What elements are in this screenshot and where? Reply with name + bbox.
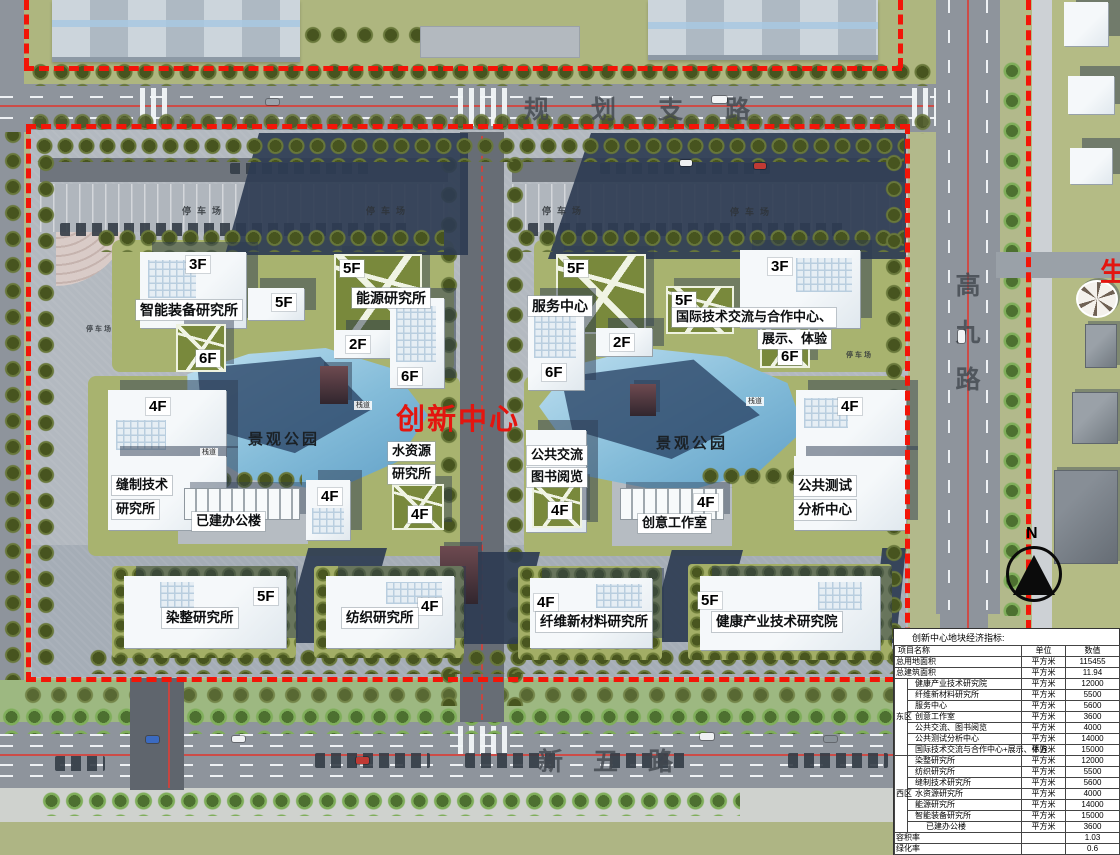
table-row: 纤维新材料研究所平方米5500 [895,690,1120,701]
table-value-cell: 5600 [1066,778,1120,789]
table-name-cell: 创意工作室 [908,712,1022,723]
table-group-cell: 西区 [895,756,908,833]
table-unit-cell: 平方米 [1022,800,1066,811]
table-name-cell: 智能装备研究所 [908,811,1022,822]
indicator-table-title: 创新中心地块经济指标: [894,629,1119,645]
house-medium [1072,392,1118,444]
table-name-cell: 已建办公楼 [908,822,1022,833]
north-parcel-dashed-line [24,66,902,71]
table-unit-cell: 平方米 [1022,679,1066,690]
table-name-cell: 染整研究所 [908,756,1022,767]
table-value-cell: 14000 [1066,800,1120,811]
table-name-cell: 健康产业技术研究院 [908,679,1022,690]
table-name-cell: 总用地面积 [895,657,1022,668]
apartment-block-3 [1070,148,1112,184]
table-unit-cell: 平方米 [1022,811,1066,822]
tree-column-west-edge [2,96,24,716]
road-right-lane-2 [986,0,988,610]
table-row: 西区染整研究所平方米12000 [895,756,1120,767]
table-row: 总建筑面积平方米11.94 [895,668,1120,679]
factory-roof-east-skylight [648,22,878,29]
site-plan-canvas: 3F 5F 6F 5F 2F 6F 4F 4F 4F 5F 4F 5F 6F 2… [0,0,1120,855]
table-name-cell: 总建筑面积 [895,668,1022,679]
table-value-cell: 1.03 [1066,833,1120,844]
car [680,160,692,166]
factory-roof-east [648,0,878,60]
table-value-cell: 115455 [1066,657,1120,668]
table-name-cell: 纤维新材料研究所 [908,690,1022,701]
table-row: 绿化率0.6 [895,844,1120,855]
table-unit-cell: 平方米 [1022,657,1066,668]
table-row: 智能装备研究所平方米15000 [895,811,1120,822]
table-header-row: 项目名称 单位 数值 [895,646,1120,657]
table-unit-cell: 平方米 [1022,778,1066,789]
table-value-cell: 5600 [1066,701,1120,712]
car [232,736,245,742]
parked-cars-row-1 [315,753,430,768]
car [700,733,714,740]
table-value-cell: 14000 [1066,734,1120,745]
table-value-cell: 4000 [1066,723,1120,734]
table-row: 已建办公楼平方米3600 [895,822,1120,833]
tree-column-right-of-road [1000,56,1024,616]
car [356,757,369,764]
road-name-bottom: 新五路 [538,742,703,778]
table-value-cell: 15000 [1066,811,1120,822]
table-row: 缝制技术研究所平方米5600 [895,778,1120,789]
table-unit-cell: 平方米 [1022,789,1066,800]
car [754,163,766,169]
road-name-top: 规划支路 [524,90,792,126]
parcel-dashed-corner-west [24,0,29,68]
table-unit-cell: 平方米 [1022,690,1066,701]
indicator-table-panel: 创新中心地块经济指标: 项目名称 单位 数值总用地面积平方米115455总建筑面… [893,628,1120,855]
apartment-block-2 [1068,76,1114,114]
table-unit-cell: 平方米 [1022,767,1066,778]
table-name-cell: 绿化率 [895,844,1022,855]
table-value-cell: 5500 [1066,690,1120,701]
north-arrow-label: N [1026,525,1038,543]
table-unit-cell: 平方米 [1022,712,1066,723]
table-row: 国际技术交流与合作中心+展示、体验平方米15000 [895,745,1120,756]
tree-row-bottom-road-south [40,790,740,816]
indicator-table-body: 项目名称 单位 数值总用地面积平方米115455总建筑面积平方米11.94东区健… [895,646,1120,855]
site-boundary-red-dashed [26,124,910,682]
table-header-unit: 单位 [1022,646,1066,657]
table-row: 水资源研究所平方米4000 [895,789,1120,800]
table-value-cell: 3600 [1066,822,1120,833]
table-value-cell: 12000 [1066,756,1120,767]
table-row: 容积率1.03 [895,833,1120,844]
table-header-name: 项目名称 [895,646,1022,657]
parcel-dashed-corner-east [898,0,903,68]
parked-cars-row-4 [788,753,888,768]
table-name-cell: 能源研究所 [908,800,1022,811]
table-unit-cell: 平方米 [1022,723,1066,734]
table-value-cell: 4000 [1066,789,1120,800]
apartment-block-1 [1064,2,1108,46]
car [958,330,965,343]
table-name-cell: 纺织研究所 [908,767,1022,778]
table-name-cell: 公共测试分析中心 [908,734,1022,745]
table-value-cell: 3600 [1066,712,1120,723]
offsite-red-character: 生 [1100,252,1120,289]
top-parking-lot [420,26,580,58]
table-group-cell: 东区 [895,679,908,756]
table-name-cell: 缝制技术研究所 [908,778,1022,789]
table-row: 创意工作室平方米3600 [895,712,1120,723]
indicator-table: 项目名称 单位 数值总用地面积平方米115455总建筑面积平方米11.94东区健… [894,645,1120,855]
north-arrow-icon [1013,555,1055,595]
table-value-cell: 0.6 [1066,844,1120,855]
table-value-cell: 5500 [1066,767,1120,778]
house-large [1054,470,1118,564]
factory-roof-west-skylight [52,20,300,27]
bottom-lawn [0,822,893,855]
table-unit-cell: 平方米 [1022,822,1066,833]
car [824,736,837,742]
table-unit-cell [1022,844,1066,855]
table-row: 东区健康产业技术研究院平方米12000 [895,679,1120,690]
table-value-cell: 12000 [1066,679,1120,690]
table-value-cell: 15000 [1066,745,1120,756]
table-header-value: 数值 [1066,646,1120,657]
car [266,99,279,105]
table-row: 能源研究所平方米14000 [895,800,1120,811]
house-small [1085,324,1117,368]
table-name-cell: 水资源研究所 [908,789,1022,800]
table-name-cell: 公共交流、图书阅览 [908,723,1022,734]
table-unit-cell: 平方米 [1022,701,1066,712]
factory-roof-west [52,0,300,62]
table-name-cell: 国际技术交流与合作中心+展示、体验 [908,745,1022,756]
table-name-cell: 容积率 [895,833,1022,844]
car [146,736,159,743]
table-unit-cell [1022,833,1066,844]
table-row: 公共测试分析中心平方米14000 [895,734,1120,745]
road-name-right: 高九路 [948,272,984,413]
tree-row-top-band [300,22,420,52]
table-unit-cell: 平方米 [1022,734,1066,745]
table-row: 服务中心平方米5600 [895,701,1120,712]
table-name-cell: 服务中心 [908,701,1022,712]
table-row: 公共交流、图书阅览平方米4000 [895,723,1120,734]
table-value-cell: 11.94 [1066,668,1120,679]
table-unit-cell: 平方米 [1022,668,1066,679]
table-row: 总用地面积平方米115455 [895,657,1120,668]
car [712,96,727,103]
table-unit-cell: 平方米 [1022,756,1066,767]
parked-cars-row-5 [55,756,105,771]
table-row: 纺织研究所平方米5500 [895,767,1120,778]
